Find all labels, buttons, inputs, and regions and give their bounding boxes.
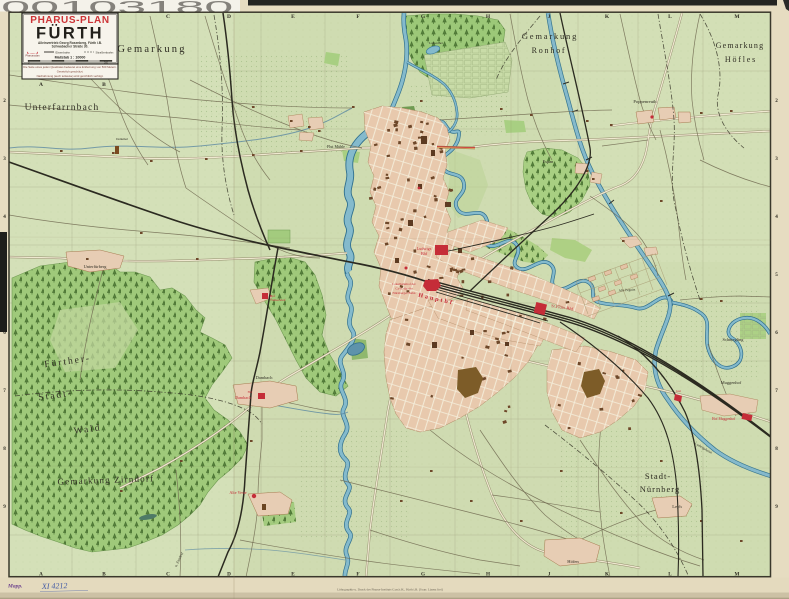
- svg-text:3: 3: [775, 156, 778, 162]
- svg-text:Leyh: Leyh: [672, 504, 682, 509]
- svg-text:Espan: Espan: [543, 159, 555, 164]
- svg-text:8: 8: [775, 446, 778, 452]
- svg-text:Flut Mühle: Flut Mühle: [327, 144, 345, 149]
- svg-text:Gemarkung: Gemarkung: [522, 31, 578, 41]
- svg-text:4: 4: [3, 214, 6, 220]
- svg-text:Straßenbahn: Straßenbahn: [96, 50, 114, 54]
- svg-text:Weikershof: Weikershof: [270, 298, 286, 302]
- svg-text:Pharus-plan: Pharus-plan: [26, 54, 41, 58]
- svg-text:L: L: [668, 14, 672, 20]
- svg-text:9: 9: [775, 504, 778, 510]
- svg-text:7: 7: [3, 388, 6, 394]
- svg-text:Unterfürberg: Unterfürberg: [84, 264, 108, 269]
- svg-text:K: K: [605, 14, 610, 20]
- svg-text:Poppenreuth: Poppenreuth: [633, 99, 657, 104]
- svg-text:Unterfarrnbach: Unterfarrnbach: [25, 102, 100, 113]
- svg-text:Schwabacher Straße 30.: Schwabacher Straße 30.: [52, 45, 89, 49]
- svg-text:Maßstab 1 : 10000: Maßstab 1 : 10000: [55, 56, 86, 60]
- svg-text:E: E: [291, 14, 295, 20]
- svg-text:Nachahmung (auch teilweise) wi: Nachahmung (auch teilweise) wird gericht…: [37, 74, 104, 78]
- svg-text:Denkmal: Denkmal: [116, 137, 128, 141]
- svg-text:Gemarkung: Gemarkung: [117, 44, 186, 55]
- svg-text:Hof Muggenhof: Hof Muggenhof: [712, 417, 736, 421]
- svg-text:D: D: [227, 14, 231, 20]
- svg-text:7: 7: [775, 388, 778, 394]
- svg-text:Bhf: Bhf: [421, 251, 428, 256]
- svg-text:Dambach: Dambach: [235, 395, 252, 400]
- svg-text:Gesetzlich geschützt.: Gesetzlich geschützt.: [57, 70, 84, 74]
- svg-text:8: 8: [3, 446, 6, 452]
- svg-text:Gemarkung: Gemarkung: [716, 41, 765, 50]
- svg-text:J: J: [548, 14, 551, 20]
- svg-text:Lohweiher: Lohweiher: [429, 41, 444, 45]
- svg-text:A: A: [39, 82, 43, 88]
- svg-text:Hof: Hof: [248, 390, 253, 394]
- svg-text:4: 4: [775, 214, 778, 220]
- svg-text:5: 5: [775, 272, 778, 278]
- svg-text:Stadt-: Stadt-: [645, 471, 671, 481]
- svg-text:Mapp.: Mapp.: [7, 584, 23, 590]
- svg-text:B: B: [102, 82, 106, 88]
- svg-text:6: 6: [775, 330, 778, 336]
- svg-text:9: 9: [3, 504, 6, 510]
- svg-text:Lokalbahnhof der: Lokalbahnhof der: [392, 282, 416, 286]
- svg-text:3: 3: [3, 156, 6, 162]
- svg-text:G: G: [421, 14, 426, 20]
- svg-text:2: 2: [3, 98, 6, 104]
- svg-text:Gut: Gut: [676, 389, 681, 393]
- svg-text:Dambach: Dambach: [256, 375, 274, 380]
- svg-text:XI 4212: XI 4212: [41, 581, 68, 591]
- svg-text:Die Seite eines jeden Quadrate: Die Seite eines jeden Quadrates bedeutet…: [23, 65, 117, 69]
- svg-text:Alte Veste: Alte Veste: [229, 490, 246, 495]
- svg-text:M: M: [734, 14, 740, 20]
- svg-text:Nürnberger Bahn: Nürnberger Bahn: [393, 291, 416, 295]
- svg-text:Eisenbahn: Eisenbahn: [56, 50, 71, 54]
- svg-text:Ca-d.-für-die: Ca-d.-für-die: [395, 287, 413, 291]
- svg-text:FÜRTH: FÜRTH: [36, 24, 104, 43]
- svg-text:Ronhof: Ronhof: [532, 46, 567, 55]
- svg-text:2: 2: [775, 98, 778, 104]
- svg-text:C: C: [166, 14, 170, 20]
- svg-text:Höfles: Höfles: [725, 55, 757, 64]
- svg-text:Muggenhof: Muggenhof: [721, 380, 742, 385]
- svg-text:Schniegling: Schniegling: [723, 337, 745, 342]
- svg-text:Nürnberg: Nürnberg: [640, 484, 680, 494]
- svg-text:Höfen: Höfen: [567, 559, 579, 564]
- svg-text:H: H: [486, 14, 491, 20]
